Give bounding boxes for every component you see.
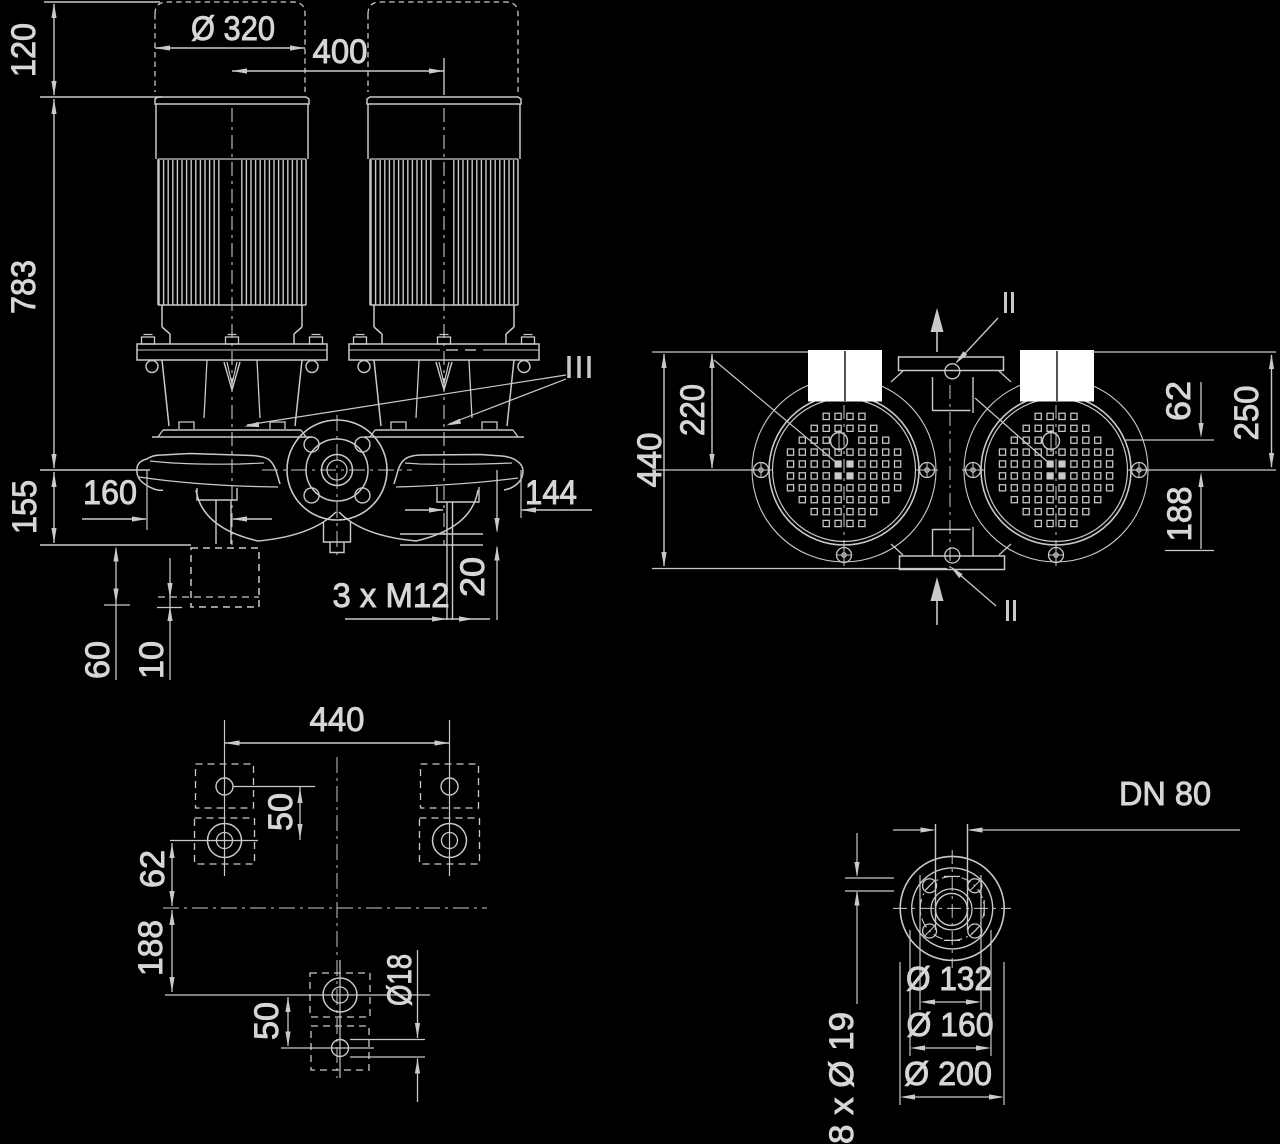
svg-text:188: 188 — [1161, 487, 1199, 542]
svg-text:DN 80: DN 80 — [1119, 775, 1211, 812]
svg-text:220: 220 — [674, 384, 712, 436]
svg-text:Ø18: Ø18 — [381, 954, 419, 1006]
svg-text:155: 155 — [6, 480, 44, 534]
svg-text:250: 250 — [1228, 386, 1266, 441]
svg-text:144: 144 — [525, 474, 577, 512]
svg-text:188: 188 — [132, 920, 170, 976]
svg-text:440: 440 — [310, 701, 365, 739]
svg-text:Ø 132: Ø 132 — [906, 960, 992, 997]
svg-text:10: 10 — [133, 641, 171, 679]
svg-text:62: 62 — [1160, 381, 1198, 421]
svg-text:400: 400 — [313, 33, 368, 71]
svg-text:20: 20 — [454, 557, 492, 597]
svg-text:160: 160 — [83, 474, 137, 512]
svg-text:Ø 200: Ø 200 — [904, 1055, 992, 1092]
svg-text:783: 783 — [5, 260, 43, 314]
svg-text:Ø 320: Ø 320 — [191, 10, 275, 48]
svg-text:50: 50 — [248, 1002, 286, 1040]
svg-text:Ø 160: Ø 160 — [907, 1006, 994, 1043]
svg-text:440: 440 — [631, 433, 669, 488]
svg-text:62: 62 — [134, 850, 172, 888]
svg-text:3 x M12: 3 x M12 — [333, 577, 450, 615]
svg-text:60: 60 — [79, 641, 117, 679]
svg-text:8 x Ø 19: 8 x Ø 19 — [823, 1012, 861, 1144]
svg-text:50: 50 — [262, 793, 300, 831]
svg-text:120: 120 — [5, 23, 43, 77]
